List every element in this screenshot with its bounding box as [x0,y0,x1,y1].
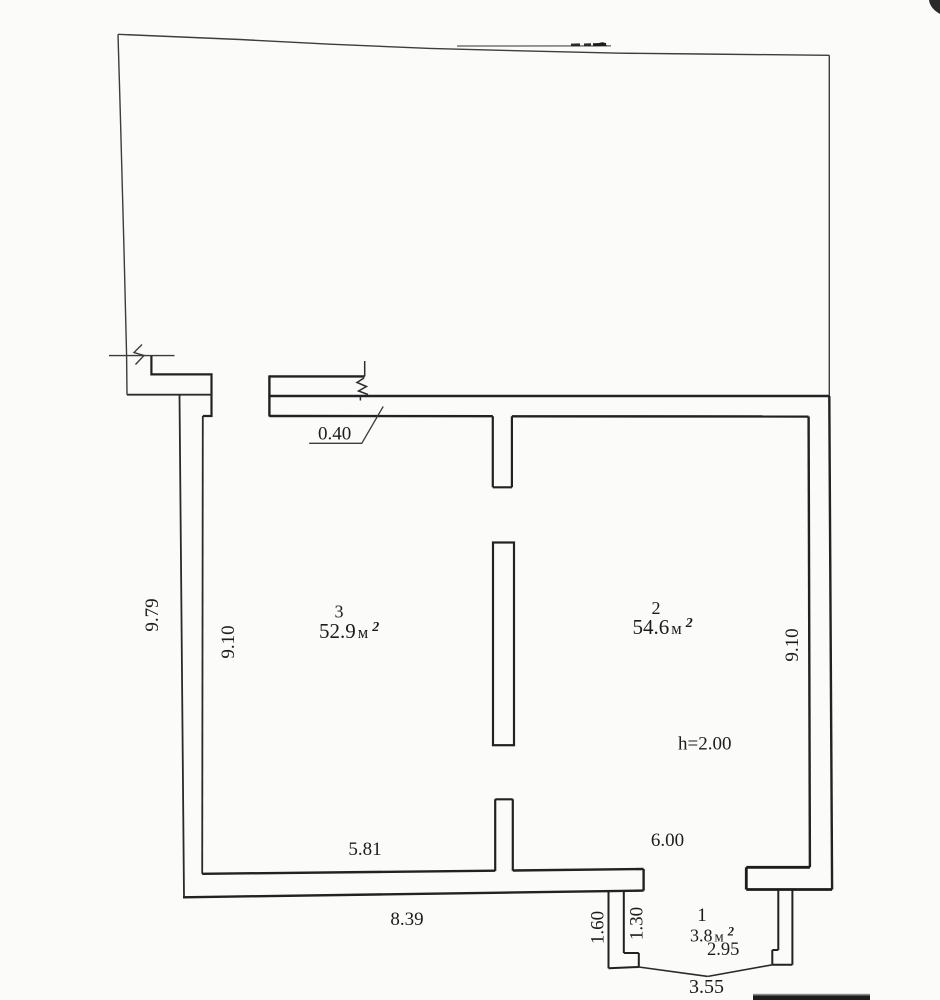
svg-text:1.30: 1.30 [627,907,648,940]
svg-text:1.60: 1.60 [588,911,609,944]
svg-text:2.95: 2.95 [707,940,739,960]
svg-text:54.6м2: 54.6м2 [633,615,693,639]
svg-text:6.00: 6.00 [651,830,684,851]
svg-text:52.9м2: 52.9м2 [319,619,379,643]
svg-text:3.55: 3.55 [689,976,724,998]
svg-text:1: 1 [697,905,707,926]
svg-text:9.79: 9.79 [142,598,163,631]
svg-text:8.39: 8.39 [390,909,423,930]
svg-text:9.10: 9.10 [218,625,239,658]
svg-text:h=2.00: h=2.00 [678,734,731,755]
svg-text:5.81: 5.81 [348,839,381,860]
svg-text:0.40: 0.40 [318,424,351,445]
svg-text:9.10: 9.10 [782,628,803,661]
